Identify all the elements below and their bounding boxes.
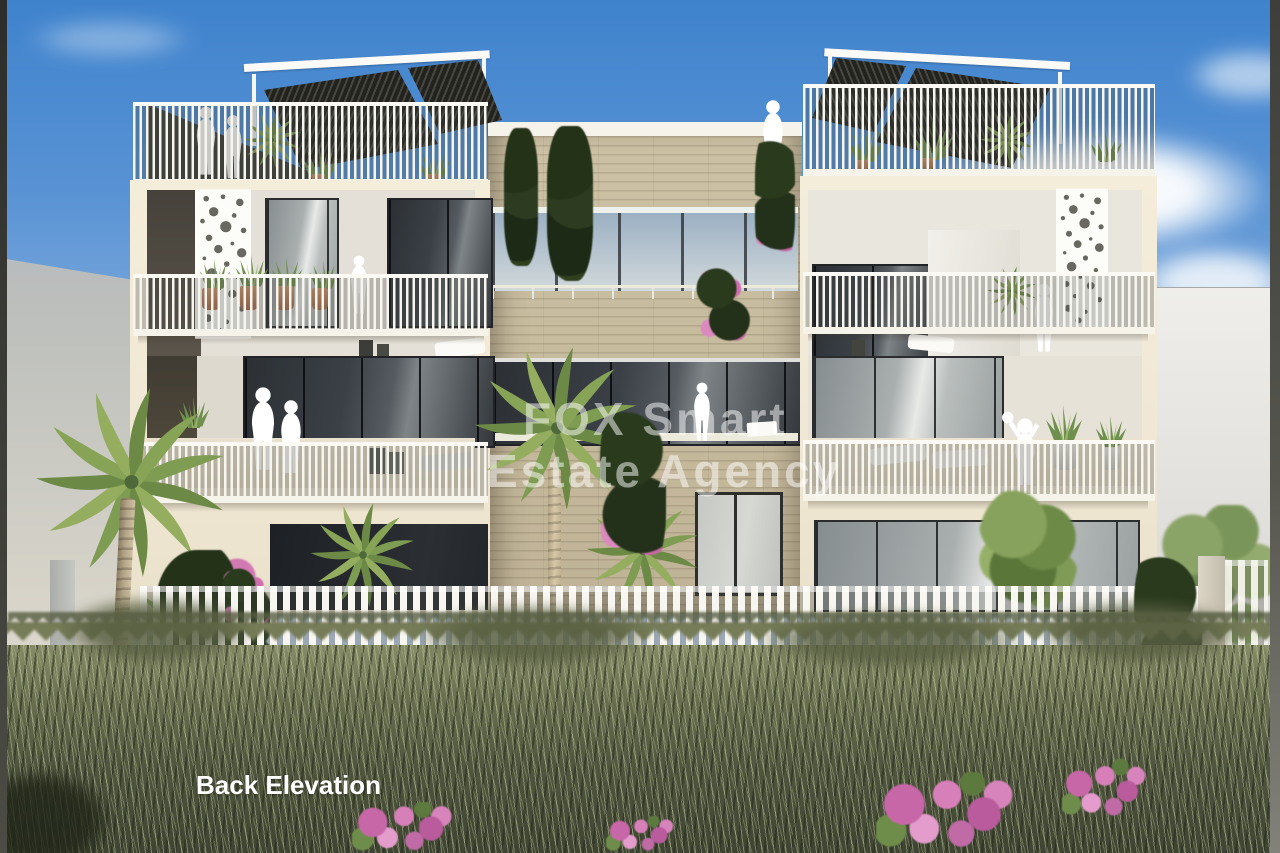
slab-shadow	[808, 501, 1148, 510]
terrace-railing	[803, 440, 1155, 501]
watermark-line-1: FOX Smart	[523, 392, 788, 446]
balcony-railing	[803, 272, 1155, 334]
flower-cluster	[1062, 758, 1148, 822]
flower-cluster	[876, 772, 1018, 853]
hanging-bougainvillea	[504, 128, 538, 266]
flower-cluster	[606, 816, 676, 853]
balcony-railing	[133, 274, 488, 336]
frame-edge-right	[1270, 0, 1280, 853]
glass-balustrade	[492, 285, 798, 299]
window	[812, 356, 1004, 446]
parapet-coping	[488, 122, 802, 136]
roof-railing	[133, 102, 488, 186]
grass-tussock	[420, 604, 650, 668]
grass-tussock	[1040, 600, 1240, 666]
grass-tussock	[60, 596, 250, 666]
roof-railing	[803, 84, 1155, 176]
door-mullion	[734, 495, 737, 587]
slab-shadow	[808, 334, 1148, 342]
hanging-bougainvillea	[547, 126, 593, 281]
hanging-bougainvillea	[755, 128, 795, 268]
back-elevation-label: Back Elevation	[196, 770, 381, 801]
flower-cluster	[352, 802, 456, 853]
back-elevation-rendering: FOX Smart Estate Agency Back Elevation	[0, 0, 1280, 853]
slab-shadow	[138, 336, 484, 344]
hanging-bougainvillea	[696, 262, 750, 350]
watermark-line-2: Estate Agency	[487, 444, 841, 498]
frame-edge-left	[0, 0, 7, 853]
grass-tussock	[760, 610, 1020, 670]
balcony-plant	[1044, 400, 1084, 444]
